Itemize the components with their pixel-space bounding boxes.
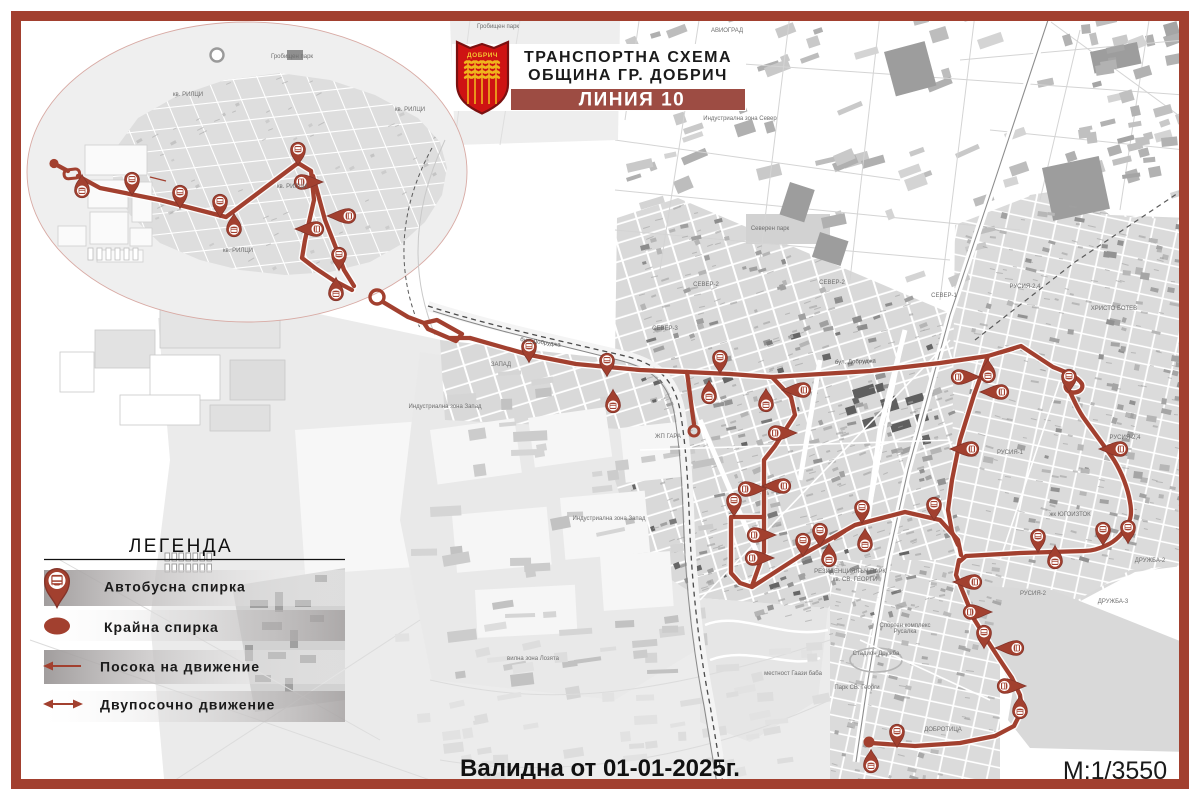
svg-text:жк ЮГОИЗТОК: жк ЮГОИЗТОК [1049, 512, 1091, 518]
svg-text:Двупосочно движение: Двупосочно движение [100, 697, 275, 713]
svg-text:ЛЕГЕНДА: ЛЕГЕНДА [129, 536, 233, 557]
svg-text:СЕВЕР-1: СЕВЕР-1 [931, 293, 957, 299]
svg-text:ЗАПАД: ЗАПАД [491, 362, 511, 368]
svg-text:Валидна от 01-01-2025г.: Валидна от 01-01-2025г. [460, 755, 740, 782]
svg-text:Индустриална зона Север: Индустриална зона Север [703, 116, 777, 122]
svg-text:ДОБРОТИЦА: ДОБРОТИЦА [924, 727, 962, 733]
svg-text:СЕВЕР-3: СЕВЕР-3 [652, 326, 678, 332]
svg-text:Индустриална зона Запад: Индустриална зона Запад [408, 404, 482, 410]
svg-text:Русалка: Русалка [894, 629, 918, 635]
svg-text:РЕЗИДЕНЦИЯЛЪН ПАРК: РЕЗИДЕНЦИЯЛЪН ПАРК [814, 569, 886, 575]
svg-text:ДОБРИЧ: ДОБРИЧ [467, 52, 498, 59]
svg-text:АВИОГРАД: АВИОГРАД [711, 28, 743, 34]
svg-text:ДРУЖБА-3: ДРУЖБА-3 [1098, 599, 1129, 605]
svg-text:местност Гаази баба: местност Гаази баба [764, 671, 822, 677]
svg-text:РУСИЯ-2,4: РУСИЯ-2,4 [1010, 284, 1042, 290]
svg-text:Парк СВ. Георги: Парк СВ. Георги [834, 685, 879, 691]
svg-text:ЛИНИЯ 10: ЛИНИЯ 10 [579, 90, 685, 111]
svg-text:Индустриална зона Запад: Индустриална зона Запад [572, 516, 646, 522]
svg-text:ТРАНСПОРТНА СХЕМА: ТРАНСПОРТНА СХЕМА [524, 49, 732, 66]
svg-text:кв. РИЛЦИ: кв. РИЛЦИ [173, 92, 203, 98]
svg-text:СЕВЕР-2: СЕВЕР-2 [693, 282, 719, 288]
svg-text:ЖП ГАРА: ЖП ГАРА [655, 434, 681, 440]
svg-text:Гробищен парк: Гробищен парк [271, 54, 313, 60]
svg-text:Северен парк: Северен парк [751, 226, 790, 232]
svg-text:РУСИЯ-2: РУСИЯ-2 [1020, 591, 1047, 597]
svg-text:СЕВЕР-2: СЕВЕР-2 [819, 280, 845, 286]
svg-text:РУСИЯ-1: РУСИЯ-1 [997, 450, 1024, 456]
svg-text:вилна зона Лозята: вилна зона Лозята [507, 656, 560, 662]
svg-text:Посока на движение: Посока на движение [100, 659, 260, 675]
svg-text:ХРИСТО БОТЕВ: ХРИСТО БОТЕВ [1091, 306, 1137, 312]
svg-text:кв. РИЛЦИ: кв. РИЛЦИ [395, 107, 425, 113]
svg-text:РУСИЯ-2,4: РУСИЯ-2,4 [1110, 435, 1142, 441]
svg-text:Крайна спирка: Крайна спирка [104, 619, 219, 635]
svg-text:Автобусна спирка: Автобусна спирка [104, 579, 246, 595]
svg-text:кв. РИЛЦИ: кв. РИЛЦИ [277, 184, 307, 190]
svg-text:ДРУЖБА-2: ДРУЖБА-2 [1135, 558, 1166, 564]
svg-text:кв. СВ. ГЕОРГИ: кв. СВ. ГЕОРГИ [833, 577, 877, 583]
svg-text:ОБЩИНА ГР. ДОБРИЧ: ОБЩИНА ГР. ДОБРИЧ [528, 67, 728, 84]
svg-text:кв. РИЛЦИ: кв. РИЛЦИ [223, 248, 253, 254]
svg-text:Стадион Дружба: Стадион Дружба [853, 651, 900, 657]
svg-text:Гробищен парк: Гробищен парк [477, 24, 519, 30]
